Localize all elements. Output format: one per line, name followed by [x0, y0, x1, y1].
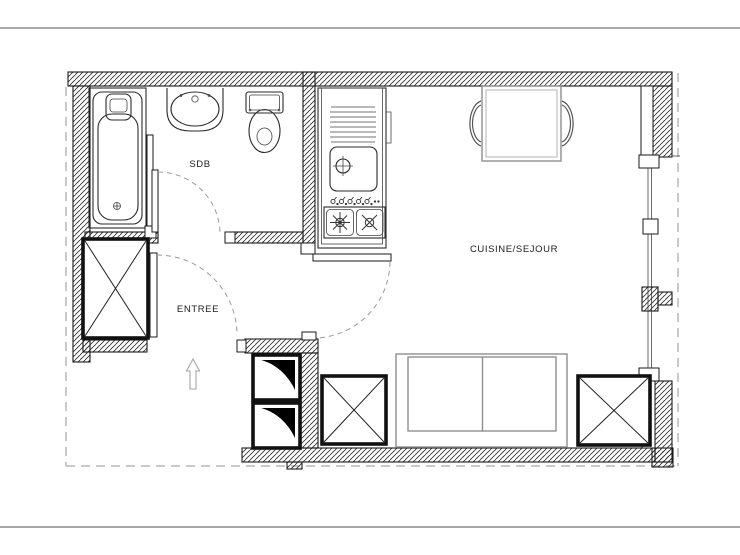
wall-end-cap — [301, 243, 315, 254]
bathroom-wall-right — [233, 232, 303, 243]
bottom-wall — [242, 448, 655, 462]
entry-door-leaf — [150, 253, 157, 337]
wall-end-cap — [225, 232, 235, 243]
chair-left — [470, 101, 481, 146]
entry-door-swing-arc — [157, 255, 237, 335]
washbasin — [167, 88, 223, 131]
floorplan-page: SDB ENTREE CUISINE/SEJOUR — [0, 0, 740, 555]
window-sill-block — [639, 155, 659, 168]
chair-right — [562, 101, 573, 146]
stove-knobs — [331, 197, 379, 205]
bathroom-door-leaf — [152, 170, 158, 232]
technical-shaft-boxes — [253, 355, 300, 448]
window-band — [639, 155, 680, 381]
kitchen-door-leaf — [313, 254, 391, 261]
wardrobe-crossed-box-left — [83, 239, 148, 338]
window-mullion — [643, 219, 658, 234]
crossed-box-center — [322, 376, 386, 444]
kitchen-sink-stove-unit — [318, 88, 391, 248]
floorplan-drawing: SDB ENTREE CUISINE/SEJOUR — [0, 0, 740, 555]
right-wall-upper — [653, 86, 672, 157]
sofa — [396, 354, 567, 447]
bottom-wall-tab — [287, 462, 302, 469]
drainboard — [330, 107, 376, 142]
wall-end-cap — [302, 332, 316, 340]
window-jamb-upper — [641, 86, 653, 156]
bathroom-door-swing-arc — [158, 172, 220, 234]
right-wall-lower — [655, 381, 672, 462]
toilet — [246, 92, 283, 153]
stove-burners — [324, 207, 385, 238]
bathtub — [89, 88, 146, 228]
counter-bracket — [386, 112, 391, 143]
bathroom-kitchen-wall — [303, 72, 315, 243]
bathroom-door — [152, 170, 220, 234]
wardrobe-bottom-wall — [83, 340, 147, 352]
dining-table — [482, 86, 561, 161]
room-label-entree: ENTREE — [177, 304, 219, 315]
entry-direction-arrow-icon — [187, 359, 200, 389]
wall-end-cap — [237, 340, 246, 352]
top-wall — [68, 72, 672, 86]
kitchen-door — [313, 254, 391, 338]
crossed-box-right — [578, 376, 650, 445]
room-label-sdb: SDB — [189, 159, 210, 170]
room-label-cuisine-sejour: CUISINE/SEJOUR — [470, 244, 558, 255]
entry-partition-wall — [245, 339, 318, 353]
window-pier — [642, 287, 658, 311]
shaft-side-wall — [301, 353, 318, 448]
entry-door — [150, 253, 237, 337]
kitchen-door-swing-arc — [315, 262, 390, 338]
window-pier-stub — [658, 292, 672, 305]
